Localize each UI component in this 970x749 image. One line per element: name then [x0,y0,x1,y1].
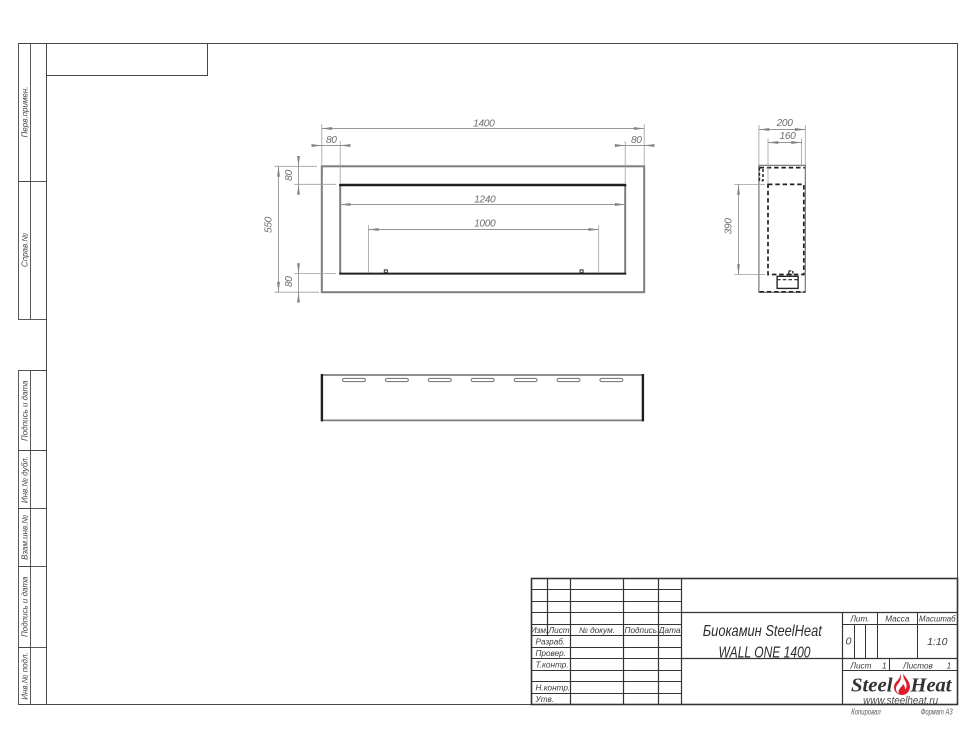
svg-text:Н.контр.: Н.контр. [536,684,571,693]
svg-text:Копировал: Копировал [851,708,881,717]
svg-text:Разраб.: Разраб. [536,638,566,647]
svg-text:Лист: Лист [849,661,871,670]
svg-text:Инв.№ дубл.: Инв.№ дубл. [20,456,29,503]
svg-text:390: 390 [724,218,735,235]
svg-text:1: 1 [882,661,887,670]
svg-text:№ докум.: № докум. [579,626,615,635]
svg-text:Инв.№ подл.: Инв.№ подл. [20,652,29,699]
svg-text:160: 160 [780,131,797,142]
svg-text:Дата: Дата [658,626,681,635]
svg-text:Подпись и дата: Подпись и дата [20,576,29,637]
svg-text:Взам.инв.№: Взам.инв.№ [20,515,29,560]
svg-text:Перв.примен.: Перв.примен. [20,87,29,138]
svg-text:Масштаб: Масштаб [919,615,956,624]
svg-text:80: 80 [631,135,642,146]
svg-text:80: 80 [326,135,337,146]
svg-text:Формат А3: Формат А3 [921,708,953,717]
svg-text:Справ.№: Справ.№ [20,233,29,267]
svg-text:Steel: Steel [851,675,893,697]
svg-text:Лит.: Лит. [849,615,869,624]
svg-text:550: 550 [264,216,275,233]
svg-text:www.steelheat.ru: www.steelheat.ru [863,695,938,707]
svg-text:Heat: Heat [910,675,953,697]
svg-text:Т.контр.: Т.контр. [536,661,569,670]
svg-text:Подпись: Подпись [625,626,657,635]
svg-text:80: 80 [284,276,295,287]
svg-text:1:10: 1:10 [927,636,948,648]
svg-text:1000: 1000 [474,218,496,229]
svg-text:Утв.: Утв. [535,695,555,704]
svg-text:Изм.: Изм. [531,626,548,635]
svg-text:200: 200 [776,118,794,129]
svg-text:Листов: Листов [902,661,934,670]
svg-text:Биокамин SteelHeat: Биокамин SteelHeat [703,623,822,640]
svg-text:1400: 1400 [473,118,495,129]
svg-text:0: 0 [846,636,852,648]
svg-text:80: 80 [284,170,295,181]
svg-text:Провер.: Провер. [536,649,567,658]
svg-text:Подпись и дата: Подпись и дата [20,380,29,441]
svg-text:Лист: Лист [548,626,570,635]
svg-text:1: 1 [947,661,952,670]
svg-text:Масса: Масса [885,615,910,624]
svg-text:1240: 1240 [474,195,496,206]
svg-text:WALL ONE 1400: WALL ONE 1400 [719,644,811,661]
